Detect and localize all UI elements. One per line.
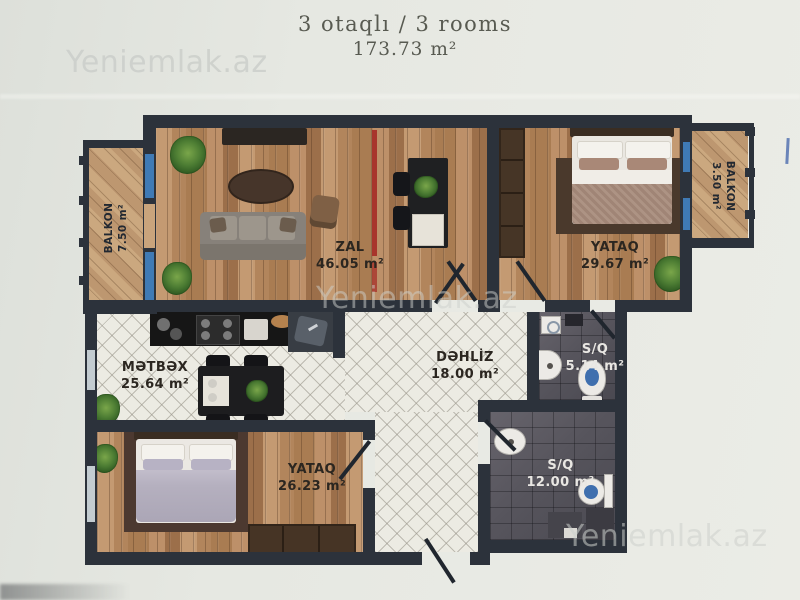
room-name: YATAQ xyxy=(262,462,362,479)
bed-pillow xyxy=(625,141,671,159)
room-area: 5.14 m² xyxy=(555,359,635,376)
paper-crease xyxy=(0,94,800,99)
balcony-post xyxy=(79,156,89,165)
room-label-yataq-bottom: YATAQ 26.23 m² xyxy=(262,462,362,496)
bed-blanket xyxy=(136,470,236,522)
room-name: S/Q xyxy=(518,458,603,475)
toilet-tank xyxy=(604,474,613,508)
wall-kitchen-stub xyxy=(333,312,345,358)
room-name: S/Q xyxy=(555,342,635,359)
room-area: 46.05 m² xyxy=(300,257,400,274)
sofa-cushion xyxy=(239,216,266,240)
wardrobe xyxy=(248,524,356,554)
wall-balcony-right-bottom xyxy=(692,238,754,248)
window-edge xyxy=(87,350,95,390)
room-label-sq-large: S/Q 12.00 m² xyxy=(518,458,603,492)
sofa-backrest xyxy=(200,244,306,260)
room-label-zal: ZAL 46.05 m² xyxy=(300,240,400,274)
room-name: BALKON xyxy=(722,161,736,212)
dehliz-floor-lower xyxy=(375,412,478,552)
room-name: MƏTBƏX xyxy=(100,360,210,377)
wall-bedroom-right-upper xyxy=(363,420,375,440)
stove-burner xyxy=(201,319,210,328)
wall-balcony-left-top xyxy=(83,140,145,148)
wall-hall-bottom-a xyxy=(363,552,422,565)
room-area: 18.00 m² xyxy=(415,367,515,384)
room-name: YATAQ xyxy=(565,240,665,257)
watermark: Yeniemlak.az xyxy=(566,522,768,552)
wardrobe-shelf xyxy=(501,225,523,227)
wall-top xyxy=(150,115,692,128)
plate xyxy=(208,393,217,402)
bed-blanket xyxy=(572,184,672,224)
washing-machine xyxy=(541,316,561,334)
bed-accent-pillow xyxy=(191,459,231,470)
room-label-dehliz: DƏHLİZ 18.00 m² xyxy=(415,350,515,384)
wardrobe-shelf xyxy=(501,159,523,161)
pan xyxy=(157,318,170,331)
stove-burner xyxy=(223,319,232,328)
watermark: Yeniemlak.az xyxy=(316,284,518,314)
sofa-pillow xyxy=(279,217,297,233)
room-area: 29.67 m² xyxy=(565,257,665,274)
balcony-post xyxy=(79,276,89,285)
room-name: ZAL xyxy=(300,240,400,257)
wardrobe-divider xyxy=(318,526,320,552)
wall-sq-small-left xyxy=(527,312,539,400)
pan xyxy=(170,328,182,340)
bed-pillow xyxy=(577,141,623,159)
room-area: 26.23 m² xyxy=(262,479,362,496)
armchair xyxy=(309,194,340,229)
dining-table xyxy=(198,366,284,416)
sofa-pillow xyxy=(209,217,227,233)
room-area: 7.50 m² xyxy=(117,204,131,252)
wardrobe-shelf xyxy=(501,192,523,194)
washer-door xyxy=(547,321,560,334)
sofa xyxy=(200,212,306,260)
desk-chair xyxy=(393,172,410,196)
kitchen-corner-unit xyxy=(288,312,333,352)
tv-stand xyxy=(222,128,307,145)
sink-drain xyxy=(547,363,553,369)
wardrobe-divider xyxy=(282,526,284,552)
stove xyxy=(196,315,240,345)
floor-plan-photo: 3 otaqlı / 3 rooms 173.73 m² xyxy=(0,0,800,600)
bed-accent-pillow xyxy=(143,459,183,470)
bed-accent-pillow xyxy=(627,158,667,170)
watermark: Yeniemlak.az xyxy=(66,48,268,78)
room-label-yataq-top: YATAQ 29.67 m² xyxy=(565,240,665,274)
corner-sink xyxy=(294,315,329,347)
pen-mark xyxy=(785,138,789,164)
wall-bath-divider xyxy=(478,400,627,412)
table-plant xyxy=(246,380,268,402)
stove-burner xyxy=(201,331,210,340)
room-name: DƏHLİZ xyxy=(415,350,515,367)
window-edge xyxy=(87,466,95,522)
photo-corner-shadow xyxy=(0,584,130,600)
room-area: 25.64 m² xyxy=(100,377,210,394)
coffee-table xyxy=(228,169,294,204)
wardrobe xyxy=(499,128,525,258)
plan-title-rooms: 3 otaqlı / 3 rooms xyxy=(150,12,660,36)
room-area: 12.00 m² xyxy=(518,475,603,492)
desk-chair xyxy=(393,206,410,230)
balcony-post xyxy=(745,127,755,136)
wall-yataq-bottom-b xyxy=(545,300,590,312)
room-label-sq-small: S/Q 5.14 m² xyxy=(555,342,635,376)
stove-burner xyxy=(223,331,232,340)
desk-papers xyxy=(412,214,444,246)
room-name: BALKON xyxy=(103,203,117,254)
cutting-board xyxy=(244,319,268,340)
wall-bath-right xyxy=(615,300,627,553)
room-area: 3.50 m² xyxy=(708,162,722,210)
room-label-metbex: MƏTBƏX 25.64 m² xyxy=(100,360,210,394)
wall-hall-bottom-b xyxy=(470,552,490,565)
wall-bedroom-top xyxy=(85,420,375,432)
room-label-balkon-right: BALKON 3.50 m² xyxy=(682,146,762,226)
wall-bottom-bedroom xyxy=(85,552,375,565)
bathroom-shelf xyxy=(565,314,583,326)
room-label-balkon-left: BALKON 7.50 m² xyxy=(77,188,157,268)
bed-accent-pillow xyxy=(579,158,619,170)
wall-sq-large-left-b xyxy=(478,464,490,552)
radiator-mark xyxy=(372,130,377,256)
